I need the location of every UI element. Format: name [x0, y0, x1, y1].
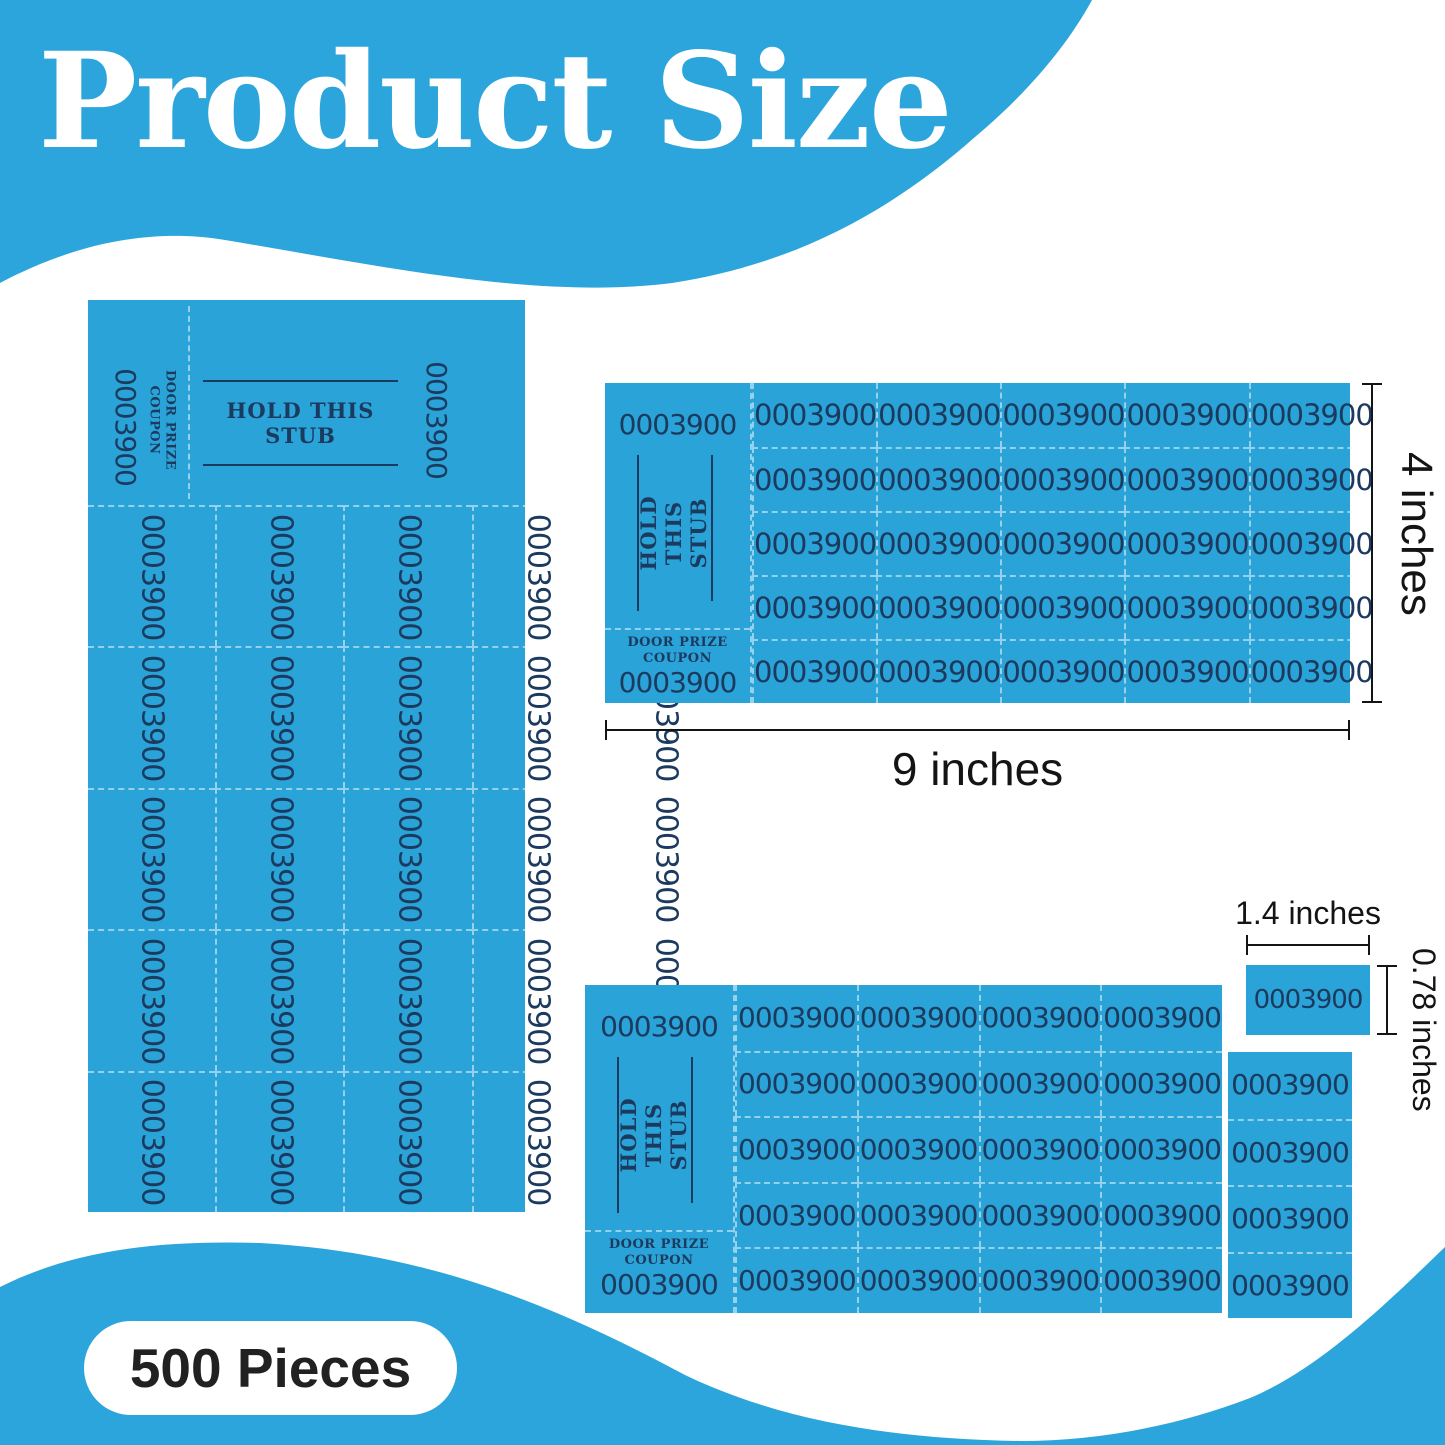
ticket-number: 0003900 [878, 530, 1000, 559]
ticket-cell: 0003900 [1100, 1182, 1222, 1248]
vertical-sheet-stub: 0003900 DOOR PRIZE COUPON HOLD THIS STUB… [88, 300, 525, 505]
ticket-number: 0003900 [522, 796, 552, 923]
single-ticket: 0003900 [1246, 965, 1370, 1035]
ticket-cell: 0003900 [343, 646, 472, 787]
perforation-line [605, 628, 750, 630]
ticket-cell: 0003900 [472, 646, 601, 787]
ticket-number: 0003900 [860, 1202, 978, 1230]
stub-line: HOLD THIS [616, 1096, 666, 1175]
ticket-number: 0003900 [1103, 1202, 1221, 1230]
ticket-number: 0003900 [1126, 658, 1248, 687]
ticket-grid: 0003900000390000039000003900000390000039… [752, 383, 1373, 703]
ticket-cell: 0003900 [88, 929, 215, 1070]
ticket-number: 0003900 [1231, 1205, 1349, 1233]
stub-line: HOLD THIS [636, 495, 686, 571]
ticket-cell: 0003900 [735, 1247, 857, 1313]
ticket-number: 0003900 [1231, 1272, 1349, 1300]
ticket-number: 0003900 [860, 1136, 978, 1164]
ticket-number: 0003900 [860, 1267, 978, 1295]
hold-this-stub-label: HOLD THIS STUB [203, 380, 398, 466]
sheet-stub: 0003900 HOLD THIS STUB DOOR PRIZE COUPON… [585, 985, 735, 1313]
ticket-number: 0003900 [754, 594, 876, 623]
stub-line: STUB [667, 1096, 692, 1175]
ticket-number: 0003900 [982, 1267, 1100, 1295]
ticket-column-strip: 0003900000390000039000003900 [1228, 1052, 1352, 1318]
pieces-count-label: 500 Pieces [130, 1336, 411, 1400]
ticket-cell: 0003900 [979, 1116, 1101, 1182]
coupon-line: COUPON [145, 370, 161, 470]
ticket-number: 0003900 [394, 1079, 424, 1206]
width-dimension-line [605, 729, 1350, 731]
ticket-cell: 0003900 [1228, 1052, 1352, 1119]
ticket-number: 0003900 [754, 530, 876, 559]
ticket-number: 0003900 [600, 1271, 718, 1299]
ticket-cell: 0003900 [215, 788, 344, 929]
ticket-cell: 0003900 [857, 1116, 979, 1182]
ticket-cell: 0003900 [1100, 1116, 1222, 1182]
ticket-number: 0003900 [136, 796, 166, 923]
ticket-number: 0003900 [394, 938, 424, 1065]
ticket-cell: 0003900 [1000, 575, 1124, 639]
ticket-number: 0003900 [136, 938, 166, 1065]
ticket-cell: 0003900 [1124, 639, 1248, 703]
ticket-cell: 0003900 [215, 929, 344, 1070]
ticket-cell: 0003900 [600, 788, 729, 929]
coupon-line: DOOR PRIZE [605, 635, 750, 651]
coupon-line: DOOR PRIZE [585, 1237, 733, 1253]
ticket-height-dimension-line [1386, 965, 1388, 1035]
ticket-cell: 0003900 [88, 646, 215, 787]
ticket-cell: 0003900 [1000, 639, 1124, 703]
ticket-cell: 0003900 [979, 1182, 1101, 1248]
ticket-cell: 0003900 [876, 575, 1000, 639]
ticket-number: 0003900 [982, 1004, 1100, 1032]
door-prize-coupon-label: DOOR PRIZE COUPON [605, 635, 750, 668]
ticket-number: 0003900 [738, 1070, 856, 1098]
ticket-number: 0003900 [111, 368, 139, 486]
hold-this-stub-label: HOLD THIS STUB [616, 1096, 692, 1175]
ticket-cell: 0003900 [1249, 575, 1373, 639]
ticket-number: 0003900 [738, 1202, 856, 1230]
ticket-cell: 0003900 [1249, 447, 1373, 511]
ticket-grid: 0003900000390000039000003900000390000039… [88, 505, 525, 1212]
ticket-number: 0003900 [1126, 594, 1248, 623]
ticket-number: 0003900 [1231, 1071, 1349, 1099]
ticket-cell: 0003900 [215, 646, 344, 787]
ticket-cell: 0003900 [1000, 383, 1124, 447]
ticket-number: 0003900 [1251, 658, 1373, 687]
ticket-number: 0003900 [265, 1079, 295, 1206]
ticket-number: 0003900 [878, 594, 1000, 623]
ticket-number: 0003900 [1103, 1070, 1221, 1098]
stub-line: STUB [227, 423, 375, 448]
ticket-number: 0003900 [1002, 594, 1124, 623]
ticket-number: 0003900 [1251, 530, 1373, 559]
ticket-number: 0003900 [878, 401, 1000, 430]
ticket-sheet-vertical: 0003900 DOOR PRIZE COUPON HOLD THIS STUB… [88, 300, 525, 1212]
ticket-cell: 0003900 [857, 1247, 979, 1313]
ticket-cell: 0003900 [472, 1071, 601, 1212]
ticket-cell: 0003900 [979, 1247, 1101, 1313]
stub-line: STUB [687, 495, 712, 571]
ticket-number: 0003900 [394, 796, 424, 923]
ticket-width-label: 1.4 inches [1222, 896, 1394, 931]
ticket-cell: 0003900 [343, 1071, 472, 1212]
ticket-number: 0003900 [982, 1136, 1100, 1164]
ticket-number: 0003900 [860, 1070, 978, 1098]
ticket-sheet-horizontal: 0003900 HOLD THIS STUB DOOR PRIZE COUPON… [605, 383, 1350, 703]
ticket-number: 0003900 [1002, 658, 1124, 687]
ticket-cell: 0003900 [979, 985, 1101, 1051]
ticket-number: 0003900 [1103, 1136, 1221, 1164]
ticket-cell: 0003900 [88, 505, 215, 646]
ticket-cell: 0003900 [343, 788, 472, 929]
ticket-cell: 0003900 [735, 985, 857, 1051]
sheet-width-label: 9 inches [605, 744, 1350, 795]
ticket-number: 0003900 [422, 361, 450, 479]
ticket-number: 0003900 [754, 466, 876, 495]
sheet-stub: 0003900 HOLD THIS STUB DOOR PRIZE COUPON… [605, 383, 752, 703]
ticket-number: 0003900 [136, 655, 166, 782]
ticket-cell: 0003900 [876, 383, 1000, 447]
ticket-sheet-horizontal-torn: 0003900 HOLD THIS STUB DOOR PRIZE COUPON… [585, 985, 1222, 1313]
ticket-cell: 0003900 [876, 511, 1000, 575]
ticket-number: 0003900 [522, 513, 552, 640]
ticket-number: 0003900 [265, 796, 295, 923]
ticket-number: 0003900 [1103, 1267, 1221, 1295]
height-dimension-line [1371, 383, 1373, 703]
ticket-cell: 0003900 [215, 505, 344, 646]
ticket-number: 0003900 [738, 1004, 856, 1032]
perforation-line [585, 1230, 733, 1232]
ticket-cell: 0003900 [472, 929, 601, 1070]
page-title: Product Size [38, 36, 951, 168]
ticket-cell: 0003900 [735, 1116, 857, 1182]
ticket-number: 0003900 [1126, 530, 1248, 559]
ticket-cell: 0003900 [857, 985, 979, 1051]
ticket-cell: 0003900 [472, 788, 601, 929]
ticket-cell: 0003900 [1124, 383, 1248, 447]
perforation-line [188, 306, 190, 499]
ticket-cell: 0003900 [215, 1071, 344, 1212]
ticket-cell: 0003900 [1000, 447, 1124, 511]
ticket-number: 0003900 [522, 1079, 552, 1206]
ticket-cell: 0003900 [752, 639, 876, 703]
ticket-grid: 0003900000390000039000003900000390000039… [735, 985, 1222, 1313]
ticket-number: 0003900 [982, 1202, 1100, 1230]
ticket-number: 0003900 [1103, 1004, 1221, 1032]
ticket-number: 0003900 [878, 466, 1000, 495]
ticket-cell: 0003900 [343, 929, 472, 1070]
ticket-cell: 0003900 [1100, 1051, 1222, 1117]
ticket-cell: 0003900 [857, 1051, 979, 1117]
ticket-number: 0003900 [1002, 466, 1124, 495]
ticket-height-label: 0.78 inches [1406, 948, 1441, 1112]
ticket-cell: 0003900 [876, 447, 1000, 511]
ticket-number: 0003900 [1231, 1139, 1349, 1167]
ticket-number: 0003900 [265, 938, 295, 1065]
ticket-cell: 0003900 [1124, 511, 1248, 575]
ticket-number: 0003900 [265, 655, 295, 782]
ticket-number: 0003900 [522, 938, 552, 1065]
ticket-number: 0003900 [1002, 401, 1124, 430]
pieces-badge: 500 Pieces [84, 1321, 457, 1415]
stub-line: HOLD THIS [227, 398, 375, 423]
ticket-cell: 0003900 [735, 1051, 857, 1117]
ticket-number: 0003900 [982, 1070, 1100, 1098]
ticket-cell: 0003900 [1228, 1185, 1352, 1252]
ticket-number: 0003900 [1254, 987, 1363, 1013]
ticket-number: 0003900 [878, 658, 1000, 687]
ticket-cell: 0003900 [752, 575, 876, 639]
ticket-number: 0003900 [1126, 466, 1248, 495]
ticket-number: 0003900 [619, 669, 737, 697]
ticket-cell: 0003900 [472, 505, 601, 646]
sheet-height-label: 4 inches [1392, 452, 1440, 616]
hold-this-stub-label: HOLD THIS STUB [636, 495, 712, 571]
ticket-cell: 0003900 [343, 505, 472, 646]
ticket-number: 0003900 [651, 796, 681, 923]
ticket-cell: 0003900 [752, 383, 876, 447]
ticket-number: 0003900 [136, 1079, 166, 1206]
ticket-number: 0003900 [1251, 594, 1373, 623]
ticket-cell: 0003900 [88, 788, 215, 929]
ticket-number: 0003900 [265, 513, 295, 640]
door-prize-coupon-label: DOOR PRIZE COUPON [145, 370, 178, 470]
ticket-number: 0003900 [1251, 466, 1373, 495]
ticket-number: 0003900 [738, 1267, 856, 1295]
ticket-number: 0003900 [754, 401, 876, 430]
ticket-cell: 0003900 [1249, 511, 1373, 575]
ticket-cell: 0003900 [752, 447, 876, 511]
ticket-cell: 0003900 [752, 511, 876, 575]
coupon-line: DOOR PRIZE [161, 370, 177, 470]
ticket-number: 0003900 [394, 513, 424, 640]
product-size-infographic: Product Size 0003900 DOOR PRIZE COUPON H… [0, 0, 1445, 1445]
ticket-cell: 0003900 [1124, 575, 1248, 639]
ticket-cell: 0003900 [1124, 447, 1248, 511]
ticket-cell: 0003900 [735, 1182, 857, 1248]
ticket-number: 0003900 [1251, 401, 1373, 430]
ticket-cell: 0003900 [1228, 1252, 1352, 1319]
ticket-number: 0003900 [1002, 530, 1124, 559]
ticket-number: 0003900 [738, 1136, 856, 1164]
ticket-cell: 0003900 [1000, 511, 1124, 575]
door-prize-coupon-label: DOOR PRIZE COUPON [585, 1237, 733, 1270]
ticket-cell: 0003900 [857, 1182, 979, 1248]
ticket-number: 0003900 [600, 1013, 718, 1041]
ticket-number: 0003900 [860, 1004, 978, 1032]
ticket-number: 0003900 [394, 655, 424, 782]
ticket-number: 0003900 [522, 655, 552, 782]
ticket-width-dimension-line [1246, 944, 1370, 946]
ticket-number: 0003900 [754, 658, 876, 687]
ticket-cell: 0003900 [1100, 1247, 1222, 1313]
ticket-cell: 0003900 [876, 639, 1000, 703]
ticket-cell: 0003900 [1249, 383, 1373, 447]
ticket-cell: 0003900 [1249, 639, 1373, 703]
ticket-number: 0003900 [619, 411, 737, 439]
ticket-cell: 0003900 [979, 1051, 1101, 1117]
ticket-number: 0003900 [1126, 401, 1248, 430]
ticket-cell: 0003900 [88, 1071, 215, 1212]
ticket-cell: 0003900 [1100, 985, 1222, 1051]
ticket-number: 0003900 [136, 513, 166, 640]
ticket-cell: 0003900 [1228, 1119, 1352, 1186]
